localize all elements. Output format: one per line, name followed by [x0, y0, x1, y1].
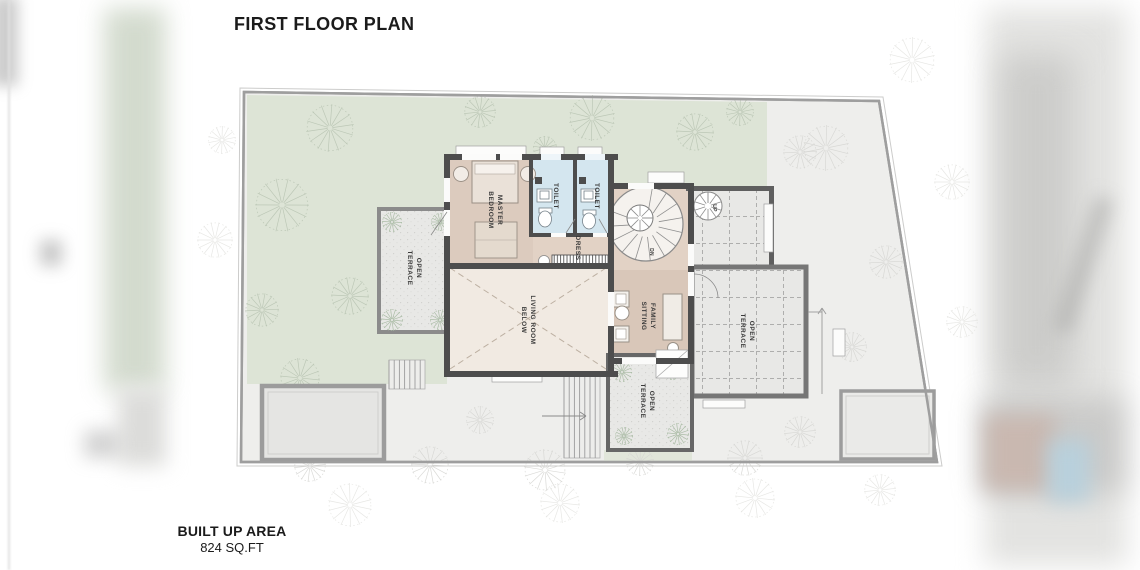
bed-pillows [475, 164, 515, 174]
svg-text:BELOW: BELOW [520, 307, 527, 334]
svg-text:LIVING ROOM: LIVING ROOM [529, 295, 536, 344]
court-bottom-right [841, 391, 934, 459]
shower-1 [535, 177, 542, 184]
sofa [663, 294, 682, 340]
svg-text:UP: UP [711, 204, 717, 212]
label-stair-up: UP [711, 204, 717, 212]
built-up-area-block: BUILT UP AREA 824 SQ.FT [176, 523, 288, 555]
room-label-dress: DRESS [574, 236, 581, 261]
svg-text:TERRACE: TERRACE [406, 251, 413, 286]
svg-text:OPEN: OPEN [415, 258, 422, 278]
wc-2 [583, 213, 596, 229]
floor-plan-canvas: MASTER BEDROOM TOILET TOILET DRESS DN UP… [0, 0, 1140, 570]
nightstand-right [521, 167, 536, 182]
built-up-area-label: BUILT UP AREA [176, 523, 288, 539]
svg-text:MASTER: MASTER [496, 195, 503, 225]
wc-1 [539, 211, 552, 227]
built-up-area-value: 824 SQ.FT [176, 540, 288, 555]
side-table [615, 306, 629, 320]
svg-text:DRESS: DRESS [574, 236, 581, 261]
svg-text:OPEN: OPEN [648, 391, 655, 411]
spiral-stair-down [609, 187, 683, 261]
svg-text:FAMILY: FAMILY [649, 303, 656, 329]
svg-text:TOILET: TOILET [593, 183, 600, 209]
svg-text:TERRACE: TERRACE [639, 384, 646, 419]
room-label-toilet-2: TOILET [593, 183, 600, 209]
svg-text:TOILET: TOILET [552, 183, 559, 209]
room-label-toilet-1: TOILET [552, 183, 559, 209]
room-open-terrace-left [379, 209, 451, 332]
svg-text:BEDROOM: BEDROOM [487, 191, 494, 228]
shower-2 [579, 177, 586, 184]
svg-text:TERRACE: TERRACE [739, 314, 746, 349]
stairs-left [389, 360, 425, 389]
label-stair-down: DN [648, 248, 654, 256]
nightstand-left [454, 167, 469, 182]
svg-text:OPEN: OPEN [748, 321, 755, 341]
svg-text:SITTING: SITTING [640, 301, 647, 330]
svg-text:DN: DN [648, 248, 654, 256]
court-bottom-left [262, 386, 384, 460]
